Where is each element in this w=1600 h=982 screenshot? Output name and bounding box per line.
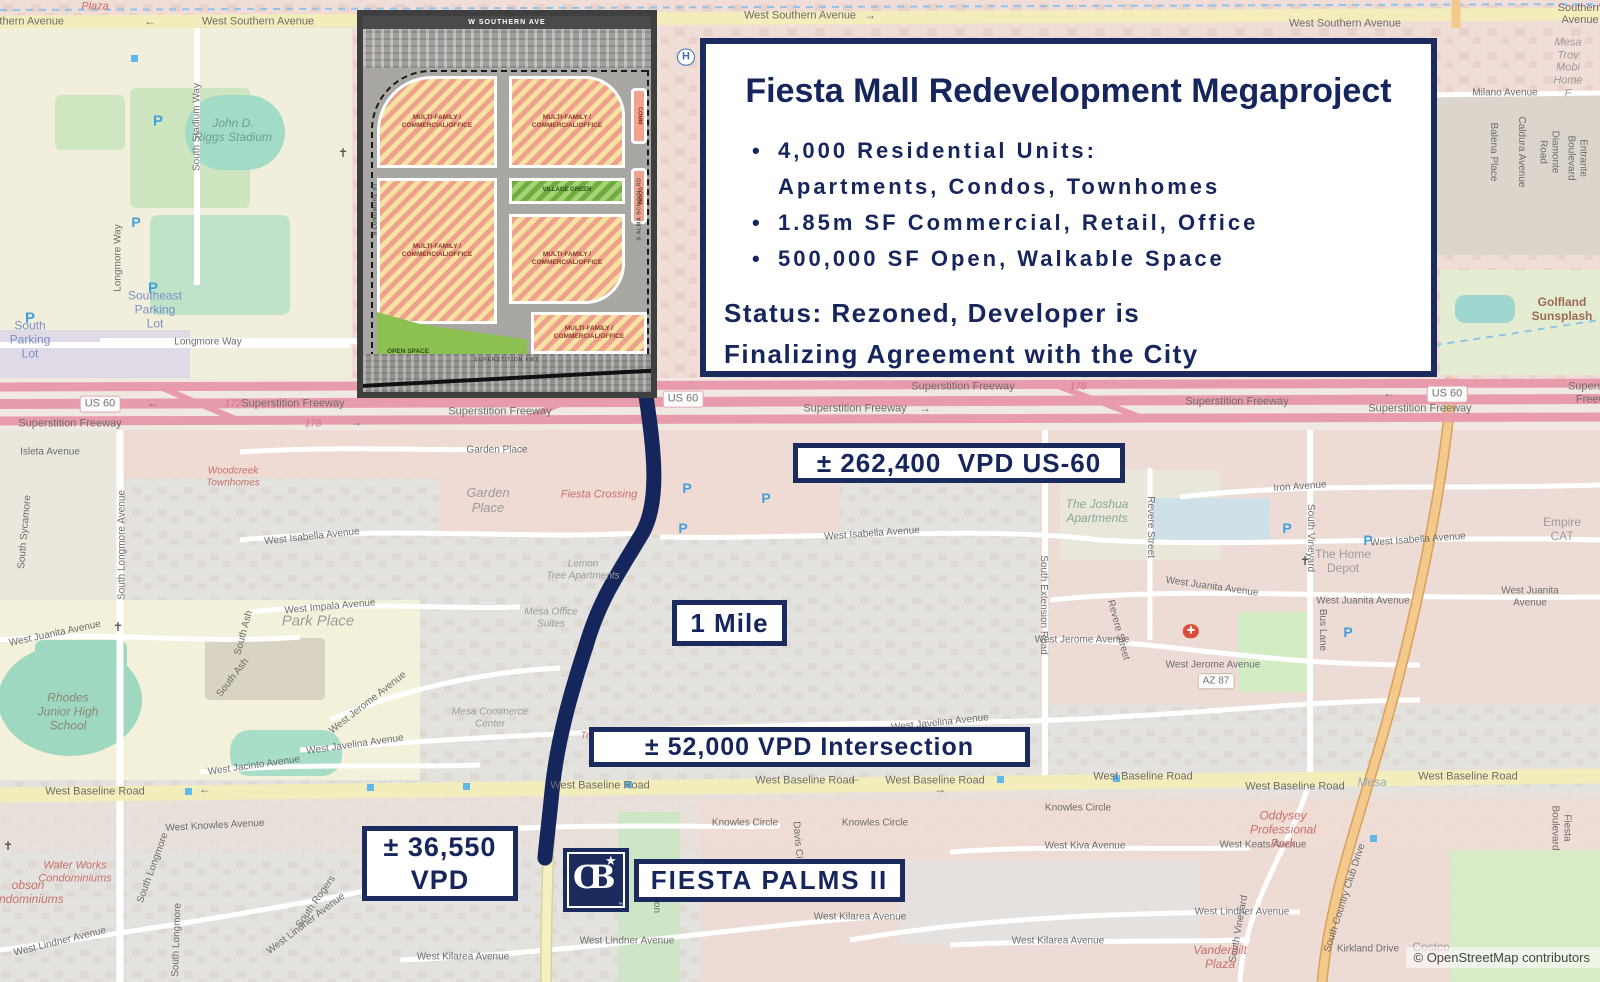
coldwell-banker-logo: CB ★ ™	[563, 848, 629, 912]
vpd-intersection-label: ± 52,000 VPD Intersection	[589, 727, 1030, 767]
osm-attribution: © OpenStreetMap contributors	[1406, 947, 1600, 968]
bullet-dot: •	[752, 205, 778, 241]
inset-freeway-strip: SUPERSTITION FWY	[363, 354, 651, 392]
logo-star-icon: ★	[605, 853, 617, 869]
project-info-box: Fiesta Mall Redevelopment Megaproject • …	[700, 38, 1437, 377]
bullet-residential-cont: Apartments, Condos, Townhomes	[752, 169, 1431, 205]
one-mile-label: 1 Mile	[672, 600, 787, 646]
project-bullets: • 4,000 Residential Units: Apartments, C…	[752, 133, 1431, 277]
vpd-us60-label: ± 262,400 VPD US-60	[793, 443, 1125, 483]
inset-zone-village-green: VILLAGE GREEN	[509, 178, 625, 204]
inset-alma-school-label: S ALMA SCHOOL RD	[636, 177, 642, 240]
project-status: Status: Rezoned, Developer is Finalizing…	[724, 293, 1431, 375]
fiesta-palms-label: FIESTA PALMS II	[634, 859, 905, 902]
inset-zone-multifamily-2: MULTI-FAMILY / COMMERCIAL/OFFICE	[509, 76, 625, 168]
site-plan-inset: W SOUTHERN AVE MULTI-FAMILY / COMMERCIAL…	[357, 10, 657, 398]
bullet-residential: • 4,000 Residential Units:	[752, 133, 1431, 169]
logo-trademark: ™	[618, 902, 623, 908]
road-southern-ave	[0, 14, 1600, 22]
inset-longmore-label: S LONGMORE ST	[372, 183, 378, 236]
inset-zone-comm-1: COMM	[631, 88, 647, 144]
project-title: Fiesta Mall Redevelopment Megaproject	[706, 72, 1431, 111]
bullet-open-space: • 500,000 SF Open, Walkable Space	[752, 241, 1431, 277]
bullet-commercial: • 1.85m SF Commercial, Retail, Office	[752, 205, 1431, 241]
logo-monogram: CB	[573, 858, 606, 896]
vpd-36550-label: ± 36,550 VPD	[362, 826, 518, 901]
inset-aerial-strip	[363, 29, 651, 68]
inset-zone-multifamily-3: MULTI-FAMILY / COMMERCIAL/OFFICE	[377, 178, 497, 324]
inset-freeway-label: SUPERSTITION FWY	[363, 357, 651, 363]
inset-freeway-line	[363, 368, 651, 389]
bullet-dot: •	[752, 133, 778, 169]
inset-southern-ave-label: W SOUTHERN AVE	[363, 16, 651, 29]
inset-zone-multifamily-5: MULTI-FAMILY / COMMERCIAL/OFFICE	[531, 312, 647, 354]
inset-zone-multifamily-4: MULTI-FAMILY / COMMERCIAL/OFFICE	[509, 214, 625, 304]
bullet-dot: •	[752, 241, 778, 277]
map-screenshot: PlazaWest Southern AvenueWest Southern A…	[0, 0, 1600, 982]
inset-zone-multifamily-1: MULTI-FAMILY / COMMERCIAL/OFFICE	[377, 76, 497, 168]
